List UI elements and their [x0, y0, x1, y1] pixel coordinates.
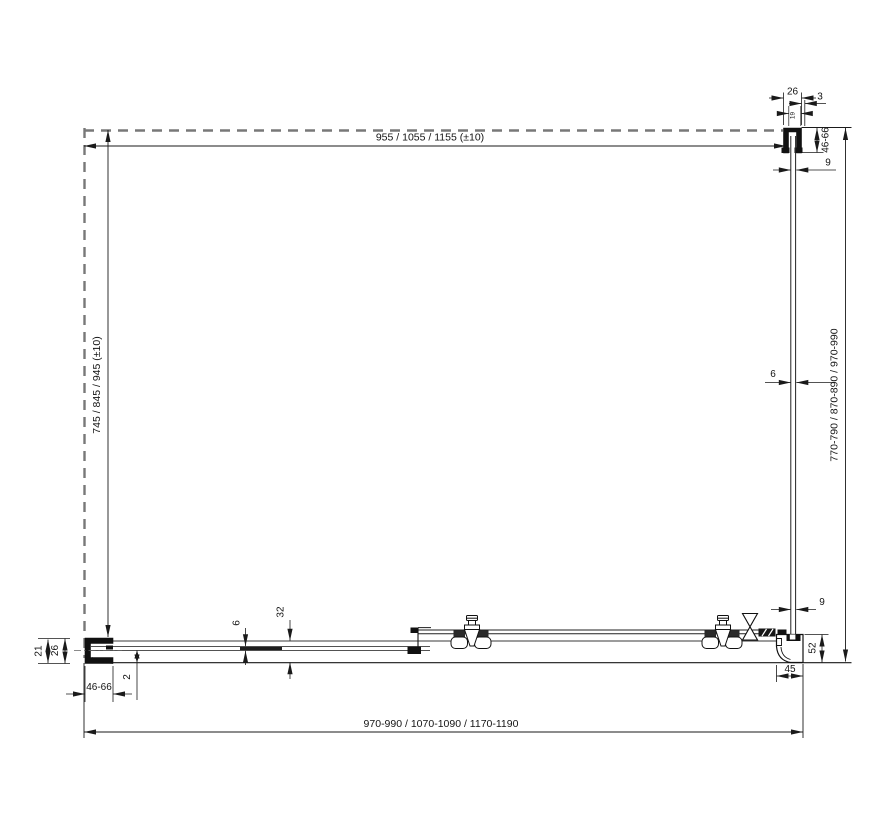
dim-label-32: 32 [276, 606, 287, 618]
dim-label-46-66-bottom: 46-66 [86, 682, 112, 693]
dim-label-46-66-top: 46-66 [821, 127, 832, 153]
door-fixing-block [759, 629, 776, 637]
roller-wheel [726, 637, 743, 649]
dim-label-2: 2 [122, 674, 133, 680]
dim-label-26-top: 26 [787, 87, 799, 98]
dim-label-6-rail: 6 [232, 620, 243, 626]
dim-label-left-height: 745 / 845 / 945 (±10) [91, 336, 103, 433]
dim-label-9-bottom: 9 [819, 597, 825, 608]
drawing-sheet: 955 / 1055 / 1155 (±10) 745 / 845 / 945 … [0, 0, 886, 817]
dim-label-right-height: 770-790 / 870-890 / 970-990 [829, 328, 841, 461]
dim-label-9-top: 9 [825, 158, 831, 169]
roller-wheel [451, 637, 468, 649]
dim-label-bottom-width: 970-990 / 1070-1090 / 1170-1190 [364, 718, 519, 730]
dim-label-26-left: 26 [50, 645, 61, 657]
roller-wheel [702, 637, 719, 649]
fixed-glass-section [240, 647, 282, 650]
dim-label-3: 3 [817, 92, 823, 103]
technical-drawing: 955 / 1055 / 1155 (±10) 745 / 845 / 945 … [0, 0, 886, 817]
dim-label-45: 45 [784, 664, 796, 675]
dim-label-21: 21 [34, 645, 45, 657]
roller-wheel [475, 637, 492, 649]
dim-label-19: 19 [790, 112, 797, 120]
sheet-background [0, 0, 886, 817]
bottom-corner-profile [777, 630, 804, 663]
dim-label-top-width: 955 / 1055 / 1155 (±10) [376, 132, 484, 144]
dim-label-52: 52 [808, 642, 819, 654]
dim-label-6-side: 6 [770, 369, 776, 380]
